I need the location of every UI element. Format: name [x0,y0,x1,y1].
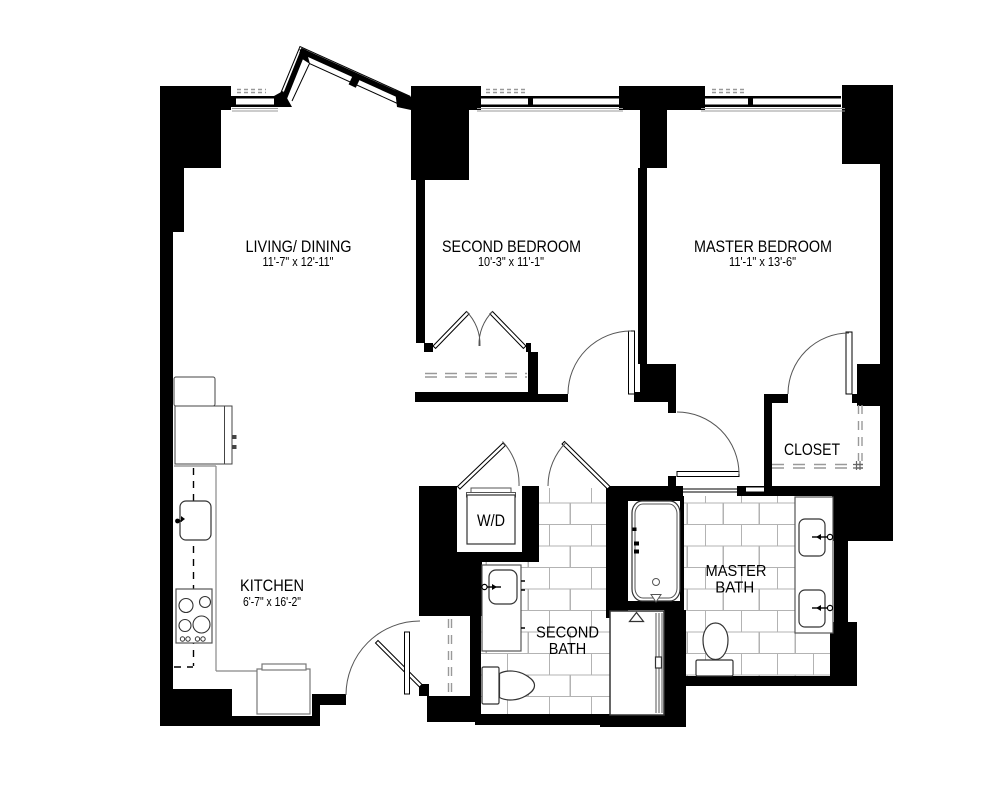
svg-text:W/D: W/D [477,511,505,530]
svg-text:10'-3" x 11'-1": 10'-3" x 11'-1" [478,255,544,269]
svg-text:BATH: BATH [715,580,754,597]
svg-text:SECOND: SECOND [536,625,599,642]
svg-text:SECOND BEDROOM: SECOND BEDROOM [442,238,581,256]
svg-text:BATH: BATH [549,641,587,658]
svg-text:6'-7" x 16'-2": 6'-7" x 16'-2" [243,595,301,609]
svg-text:KITCHEN: KITCHEN [240,577,304,595]
svg-text:11'-1" x 13'-6": 11'-1" x 13'-6" [729,255,796,269]
svg-text:LIVING/ DINING: LIVING/ DINING [246,238,352,256]
svg-text:MASTER: MASTER [706,563,767,580]
svg-text:MASTER BEDROOM: MASTER BEDROOM [694,238,832,256]
svg-text:CLOSET: CLOSET [784,440,840,459]
svg-text:11'-7" x 12'-11": 11'-7" x 12'-11" [263,255,334,269]
